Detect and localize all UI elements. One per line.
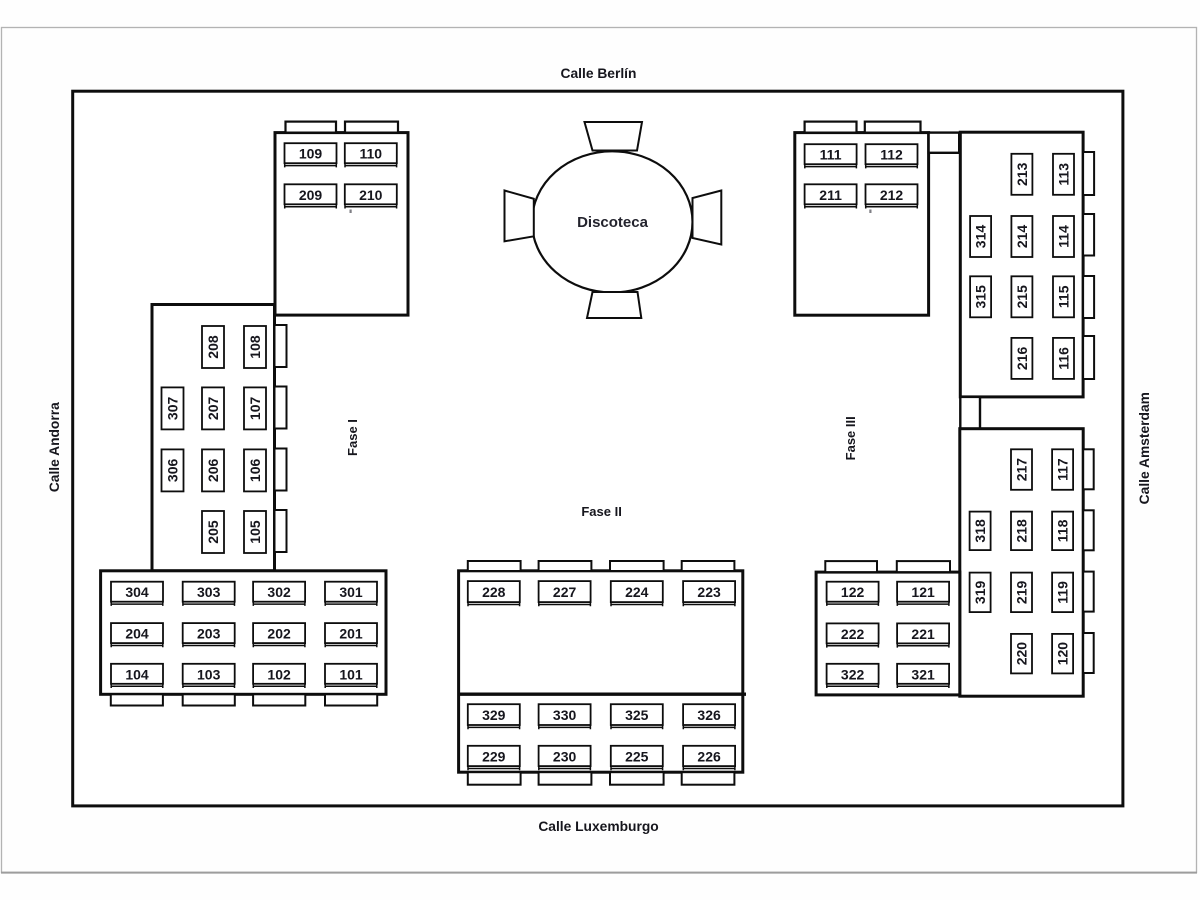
svg-text:304: 304 [125, 584, 149, 600]
svg-text:213: 213 [1014, 162, 1030, 186]
svg-text:325: 325 [625, 707, 649, 723]
svg-text:203: 203 [197, 626, 221, 642]
svg-text:118: 118 [1055, 519, 1071, 542]
svg-text:106: 106 [247, 459, 263, 483]
svg-text:Calle Amsterdam: Calle Amsterdam [1137, 392, 1152, 504]
svg-text:113: 113 [1056, 163, 1072, 186]
svg-text:214: 214 [1014, 225, 1030, 249]
svg-text:201: 201 [339, 626, 363, 642]
svg-text:Discoteca: Discoteca [577, 214, 649, 231]
svg-text:102: 102 [267, 666, 291, 682]
svg-text:119: 119 [1055, 581, 1071, 604]
svg-text:330: 330 [553, 707, 577, 723]
svg-text:204: 204 [125, 626, 149, 642]
svg-text:Calle Andorra: Calle Andorra [47, 402, 62, 492]
svg-text:319: 319 [972, 581, 988, 605]
svg-text:224: 224 [625, 584, 649, 600]
svg-text:114: 114 [1056, 225, 1072, 248]
svg-text:326: 326 [697, 707, 721, 723]
svg-text:Fase III: Fase III [843, 416, 858, 460]
svg-text:315: 315 [973, 285, 989, 309]
svg-text:329: 329 [482, 707, 506, 723]
svg-text:121: 121 [911, 584, 935, 600]
svg-text:Calle Luxemburgo: Calle Luxemburgo [538, 819, 658, 834]
svg-text:302: 302 [267, 584, 291, 600]
svg-text:226: 226 [697, 748, 721, 764]
svg-text:215: 215 [1014, 285, 1030, 309]
svg-text:221: 221 [911, 626, 935, 642]
svg-text:218: 218 [1014, 519, 1030, 543]
svg-text:111: 111 [820, 147, 842, 163]
svg-text:307: 307 [165, 397, 181, 421]
svg-text:117: 117 [1055, 458, 1071, 481]
svg-text:216: 216 [1014, 347, 1030, 371]
svg-text:212: 212 [880, 187, 904, 203]
svg-text:314: 314 [973, 225, 989, 249]
svg-text:103: 103 [197, 666, 221, 682]
svg-text:322: 322 [841, 666, 865, 682]
svg-text:108: 108 [247, 335, 263, 359]
svg-text:318: 318 [972, 519, 988, 543]
svg-text:205: 205 [205, 520, 221, 544]
svg-text:Calle Berlín: Calle Berlín [561, 66, 637, 81]
svg-text:116: 116 [1056, 347, 1072, 370]
svg-text:206: 206 [205, 459, 221, 483]
svg-text:105: 105 [247, 520, 263, 544]
svg-text:229: 229 [482, 748, 506, 764]
svg-text:217: 217 [1014, 458, 1030, 482]
svg-text:228: 228 [482, 584, 506, 600]
svg-text:Fase I: Fase I [345, 419, 360, 456]
svg-text:211: 211 [819, 187, 842, 203]
svg-text:120: 120 [1055, 642, 1071, 666]
svg-text:112: 112 [880, 147, 903, 163]
svg-text:222: 222 [841, 626, 865, 642]
svg-text:Fase II: Fase II [581, 504, 621, 519]
svg-text:223: 223 [697, 584, 721, 600]
svg-text:227: 227 [553, 584, 577, 600]
svg-text:208: 208 [205, 335, 221, 359]
svg-text:109: 109 [299, 146, 323, 162]
svg-text:209: 209 [299, 187, 323, 203]
svg-text:306: 306 [165, 459, 181, 483]
svg-text:107: 107 [247, 397, 263, 421]
svg-text:115: 115 [1056, 285, 1072, 308]
svg-text:220: 220 [1014, 642, 1030, 666]
svg-text:101: 101 [339, 666, 363, 682]
svg-text:321: 321 [911, 666, 935, 682]
svg-text:303: 303 [197, 584, 221, 600]
svg-text:219: 219 [1014, 581, 1030, 605]
svg-text:210: 210 [359, 187, 383, 203]
svg-text:202: 202 [267, 626, 291, 642]
svg-text:230: 230 [553, 748, 577, 764]
svg-text:110: 110 [360, 146, 383, 162]
svg-text:122: 122 [841, 584, 865, 600]
svg-text:104: 104 [125, 666, 149, 682]
svg-text:301: 301 [339, 584, 363, 600]
svg-text:207: 207 [205, 397, 221, 421]
svg-text:225: 225 [625, 748, 649, 764]
